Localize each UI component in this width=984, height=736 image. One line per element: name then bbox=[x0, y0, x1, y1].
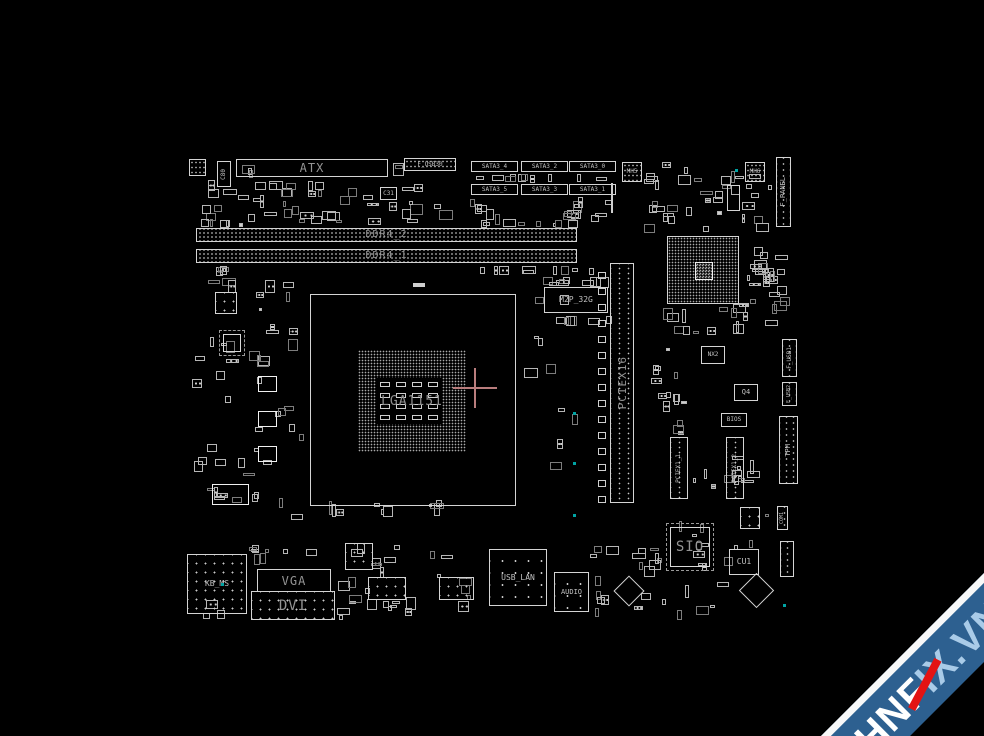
cap-c80-label: C80 bbox=[221, 169, 227, 180]
f-usb1-header[interactable]: F_USB1 bbox=[782, 339, 797, 377]
small-component bbox=[772, 304, 777, 314]
small-component bbox=[749, 540, 753, 548]
small-component bbox=[557, 439, 563, 449]
small-component bbox=[538, 338, 543, 346]
small-component bbox=[308, 191, 316, 197]
small-component bbox=[254, 492, 259, 499]
small-component bbox=[655, 180, 659, 190]
small-component bbox=[494, 266, 498, 275]
small-component bbox=[336, 220, 342, 223]
small-component bbox=[646, 173, 655, 180]
small-component bbox=[226, 359, 239, 363]
small-component bbox=[568, 220, 578, 228]
small-component bbox=[555, 220, 562, 228]
pciex1-1-slot-label: PCIEX1_1 bbox=[676, 454, 682, 483]
small-component bbox=[394, 545, 400, 550]
small-component bbox=[682, 309, 686, 323]
small-component bbox=[388, 606, 392, 611]
watermark-banner: HNFIX.VN bbox=[771, 517, 984, 736]
sata3-4-connector[interactable]: SATA3_4 bbox=[471, 161, 518, 172]
small-component bbox=[739, 303, 749, 307]
net-highlight-dot bbox=[573, 462, 576, 465]
small-component bbox=[769, 292, 780, 297]
small-component bbox=[322, 211, 336, 220]
small-component bbox=[686, 207, 692, 216]
mount-hole-mh6: MH6 bbox=[745, 162, 765, 182]
small-component bbox=[249, 547, 257, 551]
small-component bbox=[713, 197, 723, 203]
small-component bbox=[214, 205, 222, 212]
pciex1-1-slot[interactable]: PCIEX1_1 bbox=[670, 437, 688, 499]
small-component bbox=[595, 576, 601, 586]
small-component bbox=[257, 361, 269, 367]
trace-bar bbox=[611, 183, 613, 213]
small-component bbox=[207, 444, 217, 452]
sata3-5-connector[interactable]: SATA3_5 bbox=[471, 184, 518, 195]
small-component bbox=[308, 181, 313, 191]
small-component bbox=[339, 615, 343, 620]
small-component bbox=[270, 324, 275, 330]
small-component bbox=[289, 424, 295, 432]
small-component bbox=[406, 597, 416, 610]
small-component bbox=[553, 266, 557, 275]
small-component bbox=[597, 597, 605, 604]
small-component bbox=[439, 210, 453, 220]
small-component bbox=[264, 212, 277, 216]
pciex16-slot[interactable]: PCIEX16 bbox=[610, 263, 634, 503]
small-component bbox=[243, 473, 255, 476]
small-component bbox=[667, 205, 678, 212]
small-component bbox=[548, 174, 552, 182]
small-component bbox=[480, 267, 485, 274]
audio-connector[interactable]: AUDIO bbox=[554, 572, 589, 612]
small-component bbox=[483, 222, 490, 226]
small-component bbox=[572, 414, 578, 425]
small-component bbox=[777, 269, 785, 275]
small-component bbox=[705, 198, 711, 203]
small-component bbox=[410, 204, 423, 215]
small-component bbox=[606, 546, 619, 555]
small-component bbox=[216, 371, 225, 380]
sata3-1-connector-label: SATA3_1 bbox=[580, 187, 605, 193]
small-component bbox=[486, 209, 494, 220]
small-component bbox=[223, 189, 237, 195]
small-component bbox=[402, 209, 411, 219]
small-component bbox=[673, 394, 680, 402]
mount-hole-mh5: MH5 bbox=[622, 162, 642, 182]
small-component bbox=[315, 182, 324, 190]
small-component bbox=[283, 549, 288, 554]
sata3-2-connector-label: SATA3_2 bbox=[532, 164, 557, 170]
small-component bbox=[653, 365, 659, 375]
small-component bbox=[652, 206, 665, 212]
small-component bbox=[673, 425, 684, 434]
small-component bbox=[595, 608, 599, 617]
net-highlight-dot bbox=[735, 169, 738, 172]
small-component bbox=[223, 268, 226, 272]
small-component bbox=[751, 193, 759, 198]
com1-header[interactable]: COM1 bbox=[777, 506, 788, 530]
small-component bbox=[546, 364, 556, 374]
cap-c31-label: C31 bbox=[383, 191, 394, 197]
kb-ms-connector-label: KB_MS bbox=[205, 580, 229, 588]
small-component bbox=[721, 176, 731, 185]
small-component bbox=[558, 408, 565, 412]
small-component bbox=[719, 307, 728, 312]
small-component bbox=[367, 203, 379, 206]
pciex1-2-slot[interactable]: PCIEX1_2 bbox=[726, 437, 744, 499]
small-component bbox=[505, 176, 516, 182]
chip-nx2[interactable]: NX2 bbox=[701, 346, 725, 364]
small-component bbox=[693, 478, 696, 483]
small-component bbox=[260, 553, 266, 564]
small-component bbox=[238, 195, 249, 200]
bios-chip-label: BIOS bbox=[727, 417, 741, 423]
small-component bbox=[248, 214, 255, 222]
vga-connector-label: VGA bbox=[282, 575, 307, 587]
small-component bbox=[283, 201, 286, 207]
small-component bbox=[736, 321, 739, 333]
small-component bbox=[684, 167, 688, 174]
small-component bbox=[430, 551, 435, 559]
chip-cu1-label: CU1 bbox=[737, 558, 751, 566]
small-component bbox=[594, 546, 602, 553]
small-component bbox=[780, 297, 790, 306]
small-component bbox=[300, 212, 314, 219]
small-component bbox=[765, 514, 769, 517]
mount-hole bbox=[189, 159, 206, 176]
small-component bbox=[522, 266, 536, 274]
small-component bbox=[650, 548, 659, 551]
small-component bbox=[499, 266, 509, 275]
small-component bbox=[742, 214, 745, 223]
chip-nx2-label: NX2 bbox=[708, 352, 719, 358]
com1-header-label: COM1 bbox=[780, 512, 785, 524]
small-component bbox=[215, 459, 226, 466]
small-component bbox=[765, 320, 778, 326]
small-component bbox=[711, 484, 716, 489]
small-component bbox=[666, 392, 671, 398]
atx-power-connector[interactable]: ATX bbox=[236, 159, 388, 177]
small-component bbox=[256, 292, 264, 298]
small-component bbox=[681, 401, 687, 404]
small-component bbox=[663, 401, 670, 412]
small-component bbox=[747, 275, 750, 281]
small-component bbox=[717, 211, 722, 215]
small-component bbox=[201, 219, 209, 227]
pciex16-pad-column bbox=[598, 272, 606, 512]
small-component bbox=[666, 348, 670, 351]
small-component bbox=[765, 268, 774, 282]
small-component bbox=[318, 190, 322, 197]
net-highlight-dot bbox=[573, 412, 576, 415]
pch-chip[interactable] bbox=[667, 236, 739, 304]
watermark-text: HNFIX.VN bbox=[846, 592, 984, 736]
small-component bbox=[694, 178, 702, 182]
small-component bbox=[641, 593, 651, 600]
small-component bbox=[255, 182, 266, 190]
pciex16-slot-label: PCIEX16 bbox=[617, 356, 628, 409]
f-panel-header-label: F_PANEL bbox=[780, 177, 787, 207]
sata3-1-connector[interactable]: SATA3_1 bbox=[569, 184, 616, 195]
small-component bbox=[710, 605, 715, 608]
small-component bbox=[289, 328, 298, 335]
sata3-3-connector[interactable]: SATA3_3 bbox=[521, 184, 568, 195]
small-component bbox=[663, 213, 674, 217]
kb-ms-connector[interactable]: KB_MS bbox=[187, 554, 247, 614]
small-component bbox=[349, 595, 362, 603]
f-usb2-header-label: F_USB2 bbox=[787, 385, 792, 403]
small-component bbox=[281, 189, 293, 197]
inductor-box bbox=[212, 484, 249, 505]
small-component bbox=[384, 557, 396, 563]
small-component bbox=[255, 427, 263, 432]
small-component bbox=[337, 608, 350, 615]
vrm-choke bbox=[258, 446, 277, 462]
small-component bbox=[735, 176, 744, 179]
small-component bbox=[225, 396, 231, 403]
small-component bbox=[731, 171, 735, 183]
small-component bbox=[306, 549, 317, 556]
bios-chip[interactable]: BIOS bbox=[721, 413, 747, 427]
chip-q4-label: Q4 bbox=[742, 389, 750, 396]
small-component bbox=[535, 297, 544, 304]
small-component bbox=[278, 408, 286, 416]
small-component bbox=[743, 312, 748, 321]
ddr4-1-dimm-slot[interactable]: DDR4_1 bbox=[196, 249, 577, 263]
small-component bbox=[292, 206, 299, 215]
small-component bbox=[492, 175, 504, 181]
cpu-socket[interactable]: LGA1151 bbox=[310, 294, 516, 506]
f-usb30-header-label: F_USB30 bbox=[417, 162, 442, 168]
small-component bbox=[550, 462, 562, 470]
small-component bbox=[265, 280, 275, 293]
small-component bbox=[775, 255, 788, 260]
small-component bbox=[414, 184, 423, 192]
small-component bbox=[589, 268, 594, 275]
m2p-32g-connector-label: M2P_32G bbox=[559, 296, 593, 304]
small-component bbox=[238, 458, 245, 468]
audio-codec-chip bbox=[613, 575, 644, 606]
chip-cu1[interactable]: CU1 bbox=[729, 549, 759, 575]
small-component bbox=[284, 209, 292, 218]
small-component bbox=[518, 222, 525, 226]
small-component bbox=[768, 185, 772, 190]
small-component bbox=[393, 163, 404, 176]
small-component bbox=[336, 509, 344, 516]
small-component bbox=[564, 211, 572, 217]
small-component bbox=[683, 326, 690, 335]
f-panel-header[interactable]: F_PANEL bbox=[776, 157, 791, 227]
sata3-0-connector[interactable]: SATA3_0 bbox=[569, 161, 616, 172]
usb-lan-connector[interactable]: USB_LAN bbox=[489, 549, 547, 606]
small-component bbox=[495, 214, 500, 225]
trace-bar bbox=[413, 283, 425, 287]
small-component bbox=[704, 469, 707, 479]
small-component bbox=[288, 339, 298, 351]
small-component bbox=[257, 355, 261, 361]
vrm-qfp-chip bbox=[219, 330, 245, 356]
small-component bbox=[260, 195, 264, 208]
small-component bbox=[340, 196, 350, 205]
small-component bbox=[590, 554, 597, 558]
small-component bbox=[210, 219, 213, 227]
usb-lan-connector-label: USB_LAN bbox=[501, 574, 535, 582]
diamond-chip bbox=[739, 573, 774, 608]
vrm-choke bbox=[258, 411, 277, 427]
net-highlight-dot bbox=[783, 604, 786, 607]
small-component bbox=[363, 195, 373, 200]
small-component bbox=[286, 292, 290, 302]
small-component bbox=[503, 219, 516, 227]
sata3-0-connector-label: SATA3_0 bbox=[580, 164, 605, 170]
tpm-header[interactable]: TPM bbox=[779, 416, 798, 484]
small-component bbox=[677, 610, 682, 620]
small-component bbox=[591, 215, 599, 222]
qfn-chip bbox=[345, 543, 373, 570]
small-component bbox=[674, 372, 678, 379]
audio-connector-label: AUDIO bbox=[561, 589, 582, 596]
small-component bbox=[476, 176, 484, 180]
small-component bbox=[760, 252, 768, 259]
small-component bbox=[367, 599, 377, 610]
small-component bbox=[746, 184, 752, 189]
small-component bbox=[750, 264, 762, 269]
small-component bbox=[572, 268, 578, 272]
small-component bbox=[634, 606, 643, 610]
small-component bbox=[596, 177, 607, 181]
net-highlight-dot bbox=[221, 583, 224, 586]
small-component bbox=[291, 514, 303, 520]
vga-connector[interactable]: VGA bbox=[257, 569, 331, 592]
cap-c80: C80 bbox=[217, 161, 231, 187]
small-component bbox=[649, 560, 661, 570]
qfn-chip bbox=[740, 507, 760, 529]
small-component bbox=[299, 219, 305, 223]
sata3-2-connector[interactable]: SATA3_2 bbox=[521, 161, 568, 172]
tpm-header-label: TPM bbox=[785, 444, 792, 457]
small-component bbox=[750, 299, 756, 304]
rotated-cap bbox=[727, 185, 740, 211]
small-component bbox=[663, 308, 673, 320]
small-component bbox=[266, 330, 279, 334]
dvi-connector-label: DVI bbox=[279, 599, 307, 613]
small-component bbox=[265, 549, 269, 553]
small-component bbox=[731, 308, 737, 318]
small-component bbox=[409, 201, 413, 205]
small-component bbox=[195, 356, 205, 361]
cpu-socket-label: LGA1151 bbox=[358, 394, 466, 409]
small-component bbox=[549, 282, 559, 286]
crosshair-cursor-vertical bbox=[474, 368, 476, 408]
small-component bbox=[368, 218, 381, 225]
small-component bbox=[561, 266, 569, 275]
small-component bbox=[564, 317, 569, 325]
small-component bbox=[644, 224, 655, 233]
small-component bbox=[742, 202, 755, 210]
chip-q4[interactable]: Q4 bbox=[734, 384, 758, 401]
small-component bbox=[402, 187, 414, 191]
small-component bbox=[239, 223, 243, 227]
sata3-4-connector-label: SATA3_4 bbox=[482, 164, 507, 170]
small-component bbox=[662, 162, 671, 168]
small-component bbox=[194, 461, 203, 472]
ddr4-2-dimm-slot[interactable]: DDR4_2 bbox=[196, 228, 577, 242]
sata3-5-connector-label: SATA3_5 bbox=[482, 187, 507, 193]
small-component bbox=[536, 221, 541, 227]
pciex1-2-slot-label: PCIEX1_2 bbox=[732, 454, 738, 483]
small-component bbox=[747, 471, 760, 478]
small-component bbox=[348, 577, 356, 588]
vrm-choke bbox=[258, 376, 277, 392]
small-component bbox=[651, 378, 662, 384]
ddr4-2-dimm-slot-label: DDR4_2 bbox=[365, 230, 407, 240]
net-highlight-dot bbox=[573, 514, 576, 517]
small-component bbox=[208, 280, 220, 284]
small-component bbox=[259, 308, 262, 311]
small-component bbox=[563, 277, 570, 284]
small-component bbox=[678, 175, 691, 185]
small-component bbox=[269, 183, 277, 190]
mount-hole-mh6-label: MH6 bbox=[750, 169, 761, 175]
small-component bbox=[639, 562, 643, 570]
sata3-3-connector-label: SATA3_3 bbox=[532, 187, 557, 193]
small-component bbox=[700, 191, 713, 195]
ddr4-1-dimm-slot-label: DDR4_1 bbox=[365, 251, 407, 261]
small-component bbox=[749, 283, 761, 286]
f-usb2-header[interactable]: F_USB2 bbox=[782, 382, 797, 406]
sio-chip[interactable]: SIO bbox=[666, 523, 714, 571]
small-component bbox=[441, 555, 453, 559]
small-component bbox=[577, 174, 581, 182]
vrm-qfn-chip bbox=[215, 292, 237, 314]
small-component bbox=[756, 223, 769, 232]
small-component bbox=[521, 174, 528, 181]
small-component bbox=[210, 337, 214, 347]
small-component bbox=[668, 216, 675, 224]
small-component bbox=[202, 205, 211, 214]
small-component bbox=[662, 599, 666, 605]
small-component bbox=[279, 498, 283, 508]
small-header bbox=[780, 541, 794, 577]
small-component bbox=[389, 202, 397, 211]
small-component bbox=[524, 368, 538, 378]
small-component bbox=[470, 199, 475, 207]
f-usb30-header[interactable]: F_USB30 bbox=[404, 158, 456, 171]
small-component bbox=[392, 601, 400, 604]
f-usb1-header-label: F_USB1 bbox=[787, 347, 793, 369]
small-component bbox=[458, 601, 469, 612]
small-component bbox=[632, 553, 646, 559]
small-component bbox=[220, 220, 229, 228]
small-component bbox=[407, 219, 418, 223]
cap-c31: C31 bbox=[380, 187, 397, 200]
small-component bbox=[693, 331, 699, 334]
small-component bbox=[685, 585, 689, 598]
small-component bbox=[696, 606, 709, 615]
small-component bbox=[530, 175, 535, 183]
small-component bbox=[578, 197, 583, 208]
small-component bbox=[703, 226, 709, 232]
atx-power-connector-label: ATX bbox=[300, 162, 325, 174]
header-2row bbox=[439, 577, 474, 600]
header-2row bbox=[368, 577, 406, 600]
small-component bbox=[208, 180, 215, 191]
small-component bbox=[283, 282, 294, 288]
small-component bbox=[717, 582, 729, 587]
dvi-connector[interactable]: DVI bbox=[251, 591, 335, 620]
small-component bbox=[707, 327, 716, 335]
